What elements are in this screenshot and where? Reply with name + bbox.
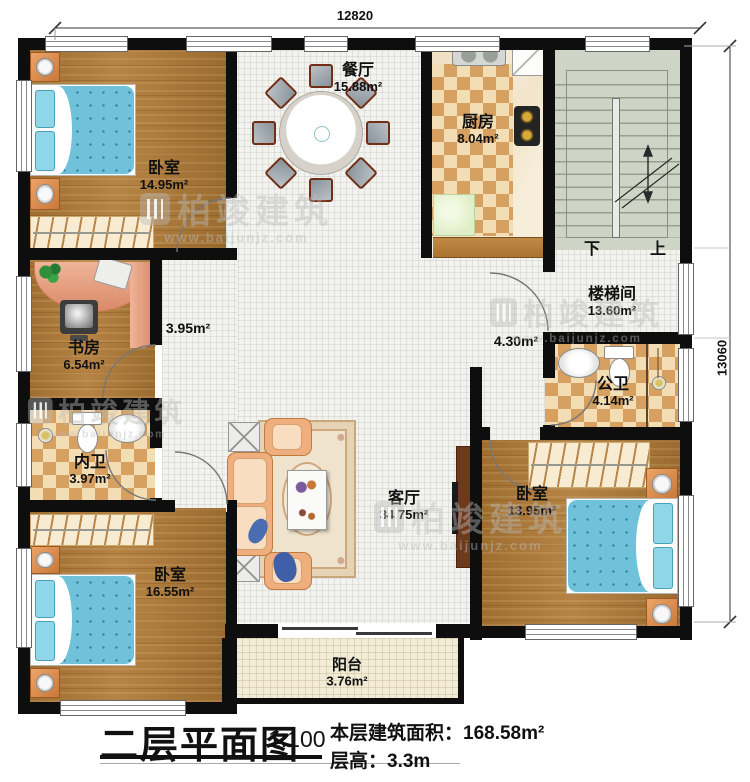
wall bbox=[470, 367, 482, 640]
bed-pillow bbox=[653, 503, 673, 544]
wall bbox=[18, 248, 237, 260]
balcony-railing bbox=[458, 638, 464, 704]
shower-head bbox=[38, 428, 53, 443]
wall bbox=[226, 50, 237, 198]
room-label-study: 书房 6.54m² bbox=[63, 340, 104, 372]
title-underline-thick bbox=[100, 755, 322, 759]
window bbox=[585, 36, 650, 52]
bed-pillow bbox=[35, 90, 55, 128]
window bbox=[525, 624, 637, 640]
wardrobe bbox=[30, 514, 154, 546]
stair-rail bbox=[612, 98, 620, 238]
window bbox=[186, 36, 272, 52]
room-label-living: 客厅 34.75m² bbox=[380, 490, 428, 522]
floor-area-line: 本层建筑面积：168.58m² bbox=[330, 718, 544, 745]
room-label-balcony: 阳台 3.76m² bbox=[326, 657, 367, 688]
computer-screen bbox=[65, 304, 93, 328]
dimension-top: 12820 bbox=[337, 8, 373, 23]
armchair-cushion bbox=[272, 424, 302, 450]
nightstand bbox=[30, 52, 60, 82]
nightstand bbox=[30, 546, 60, 574]
sliding-door-panel bbox=[282, 627, 358, 630]
sofa-cushion bbox=[233, 458, 267, 504]
wall bbox=[543, 260, 555, 272]
dining-chair bbox=[252, 121, 276, 145]
corner-table bbox=[228, 422, 260, 452]
shower-head bbox=[652, 376, 666, 390]
toilet-bowl bbox=[77, 424, 98, 453]
window bbox=[678, 263, 694, 335]
bed-pillow bbox=[653, 547, 673, 589]
nightstand bbox=[30, 178, 60, 210]
wall bbox=[18, 500, 175, 512]
room-label-bath-inner: 内卫 3.97m² bbox=[69, 454, 110, 486]
bed-pillow bbox=[35, 580, 55, 618]
shower-partition bbox=[646, 344, 648, 427]
wall bbox=[543, 344, 555, 378]
wall bbox=[543, 50, 555, 260]
dining-chair bbox=[309, 64, 333, 88]
dining-table bbox=[279, 91, 363, 175]
nightstand bbox=[646, 468, 678, 500]
kitchen-threshold bbox=[433, 237, 543, 258]
wall bbox=[18, 398, 162, 410]
kitchen-counter-board bbox=[433, 194, 475, 236]
room-label-dining: 餐厅 15.88m² bbox=[334, 62, 382, 94]
wall bbox=[227, 500, 237, 512]
room-label-bath-public: 公卫 4.14m² bbox=[592, 376, 633, 408]
wall bbox=[150, 260, 162, 345]
room-label-kitchen: 厨房 8.04m² bbox=[457, 114, 498, 146]
window bbox=[16, 80, 32, 172]
bed-pillow bbox=[35, 131, 55, 171]
nightstand bbox=[30, 668, 60, 698]
wardrobe bbox=[528, 442, 650, 488]
stairs-up-label: 上 bbox=[650, 235, 666, 259]
floor-height-line: 层高：3.3m bbox=[330, 746, 430, 773]
wall bbox=[540, 427, 692, 440]
plant bbox=[38, 263, 64, 283]
window bbox=[304, 36, 348, 52]
balcony-railing bbox=[222, 638, 228, 704]
wardrobe bbox=[30, 216, 154, 250]
room-label-bedroom-nw: 卧室 14.95m² bbox=[140, 160, 188, 192]
room-label-hall-west: 3.95m² bbox=[166, 321, 210, 337]
dining-chair bbox=[309, 178, 333, 202]
bed-pillow bbox=[35, 621, 55, 661]
wall bbox=[421, 50, 432, 258]
room-label-stairwell: 楼梯间 13.60m² bbox=[588, 286, 636, 318]
bathroom-sink bbox=[558, 348, 600, 378]
window bbox=[16, 548, 32, 648]
dimension-right: 13060 bbox=[715, 340, 730, 376]
tv bbox=[452, 482, 458, 534]
window bbox=[678, 495, 694, 607]
room-label-hall-east: 4.30m² bbox=[494, 334, 538, 350]
balcony-railing bbox=[222, 698, 464, 704]
stairs-down-label: 下 bbox=[584, 235, 600, 259]
plan-scale: 1:100 bbox=[268, 726, 326, 753]
sliding-door-panel bbox=[356, 632, 432, 635]
wall bbox=[543, 332, 692, 344]
window bbox=[415, 36, 500, 52]
window bbox=[16, 276, 32, 372]
window bbox=[678, 348, 694, 422]
window bbox=[16, 423, 32, 487]
floor-plan: 卧室 14.95m² 餐厅 15.88m² 厨房 8.04m² 楼梯间 13.6… bbox=[0, 0, 750, 782]
bathroom-sink bbox=[108, 414, 146, 443]
coffee-table bbox=[287, 470, 327, 530]
window bbox=[45, 36, 128, 52]
room-label-bedroom-se: 卧室 13.95m² bbox=[508, 486, 556, 518]
floor-hall-west bbox=[162, 252, 237, 512]
room-label-bedroom-sw: 卧室 16.55m² bbox=[146, 567, 194, 599]
dining-chair bbox=[366, 121, 390, 145]
stove bbox=[514, 106, 540, 146]
